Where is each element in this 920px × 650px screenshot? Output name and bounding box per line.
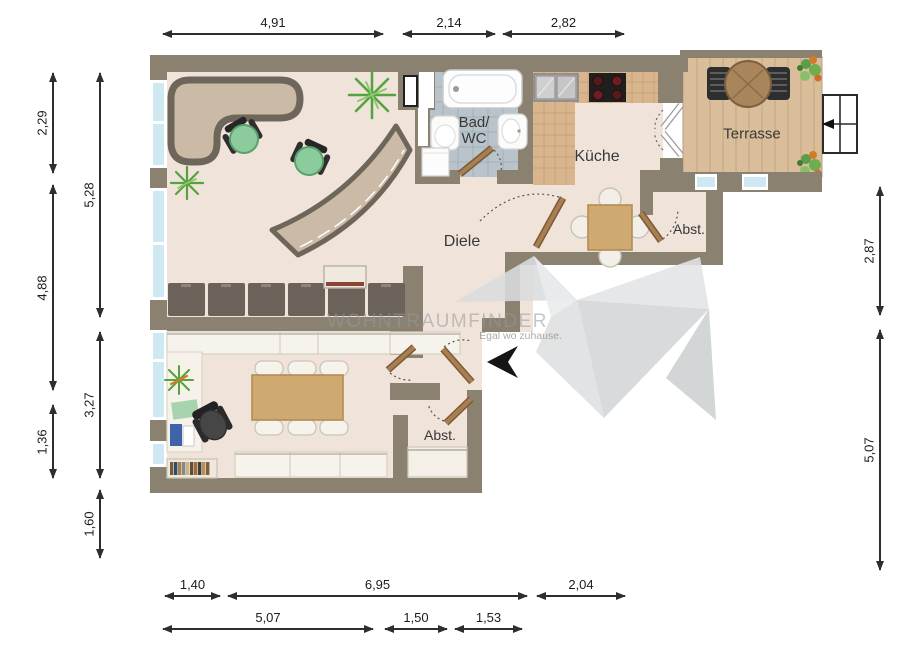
dimension-label: 2,04	[568, 577, 593, 592]
north-arrow-icon	[487, 346, 518, 378]
stove	[589, 73, 626, 102]
bathtub	[443, 70, 522, 108]
plant-icon	[349, 72, 395, 118]
room-label-abst-top: Abst.	[673, 221, 705, 237]
window-left-2	[150, 188, 167, 300]
wall-storage2-top	[390, 383, 440, 400]
dimension-line-left-inner-3: 1,60	[99, 490, 101, 558]
kitchen-sink	[534, 74, 578, 101]
shaft-framed	[404, 76, 417, 106]
wall-kitchen-right-lower	[660, 158, 683, 192]
wall-storage2-left	[393, 415, 408, 493]
room-label-abst-bottom: Abst.	[424, 427, 456, 443]
dimension-line-bottom-lower-1: 5,07	[163, 628, 373, 630]
shaft-strip	[418, 108, 428, 146]
plant-icon	[165, 366, 193, 394]
dimension-label: 2,29	[35, 110, 50, 135]
room-label-bad-wc: Bad/ WC	[459, 115, 490, 147]
desk-papers-white	[183, 426, 194, 446]
dimension-label: 1,53	[476, 610, 501, 625]
dimension-line-top-3: 2,82	[503, 33, 624, 35]
dimension-label: 1,50	[403, 610, 428, 625]
bookshelf	[167, 459, 217, 478]
dimension-line-left-inner-2: 3,27	[99, 332, 101, 478]
dimension-line-top-2: 2,14	[403, 33, 495, 35]
wall-bottom	[150, 478, 482, 493]
dimension-label: 1,40	[180, 577, 205, 592]
window-symbol	[822, 95, 857, 153]
sideboard-top	[167, 332, 460, 354]
dining-table	[252, 375, 343, 420]
dimension-label: 2,87	[862, 238, 877, 263]
wall-storage1-top	[640, 170, 662, 192]
dimension-line-bottom-upper-1: 1,40	[165, 595, 220, 597]
window-under-terrace-1	[695, 174, 717, 190]
kitchen-table	[588, 205, 632, 250]
dimension-label: 5,28	[82, 182, 97, 207]
terrace-top-wall	[680, 50, 822, 58]
dimension-label: 4,91	[260, 15, 285, 30]
wall-kitchen-right-upper	[658, 55, 683, 103]
storage2-cabinet	[408, 447, 467, 477]
washing-machine	[422, 148, 449, 176]
dimension-label: 1,36	[35, 429, 50, 454]
dimension-label: 5,07	[255, 610, 280, 625]
dimension-line-left-outer-1: 2,29	[52, 73, 54, 173]
window-left-1	[150, 80, 167, 168]
room-label-kueche: Küche	[574, 148, 619, 166]
dimension-label: 2,14	[436, 15, 461, 30]
room-label-diele: Diele	[444, 233, 480, 251]
window-left-4	[150, 441, 167, 467]
dimension-line-left-inner-1: 5,28	[99, 73, 101, 317]
dimension-line-bottom-lower-3: 1,53	[455, 628, 522, 630]
dimension-label: 6,95	[365, 577, 390, 592]
dimension-line-left-outer-2: 4,88	[52, 185, 54, 390]
dimension-label: 4,88	[35, 275, 50, 300]
desk-papers-blue	[170, 424, 182, 446]
dimension-label: 2,82	[551, 15, 576, 30]
dimension-line-bottom-upper-2: 6,95	[228, 595, 527, 597]
window-under-terrace-2	[742, 174, 768, 190]
dimension-line-bottom-lower-2: 1,50	[385, 628, 447, 630]
console-table	[324, 266, 366, 288]
sideboard-bottom	[235, 452, 387, 477]
dimension-line-top-1: 4,91	[163, 33, 383, 35]
watermark-tagline: Egal wo zuhause.	[428, 330, 562, 342]
dimension-line-right-2: 5,07	[879, 330, 881, 570]
dimension-label: 3,27	[82, 392, 97, 417]
dimension-line-bottom-upper-3: 2,04	[537, 595, 625, 597]
room-label-terrasse: Terrasse	[723, 126, 781, 143]
dimension-line-left-outer-3: 1,36	[52, 405, 54, 478]
bath-sink	[498, 114, 527, 149]
tub-faucet	[453, 86, 459, 92]
toilet	[431, 116, 459, 150]
dimension-label: 1,60	[82, 511, 97, 536]
shaft-plain	[419, 72, 434, 108]
plant-icon	[171, 167, 203, 199]
floor-plan-page: WOHNTRAUMFINDER Egal wo zuhause. Bad/ WC…	[0, 0, 920, 650]
window-left-3	[150, 330, 167, 420]
wall-storage1-left-stub	[640, 192, 653, 215]
terrace	[680, 50, 857, 177]
dimension-label: 5,07	[862, 437, 877, 462]
dimension-line-right-1: 2,87	[879, 187, 881, 315]
